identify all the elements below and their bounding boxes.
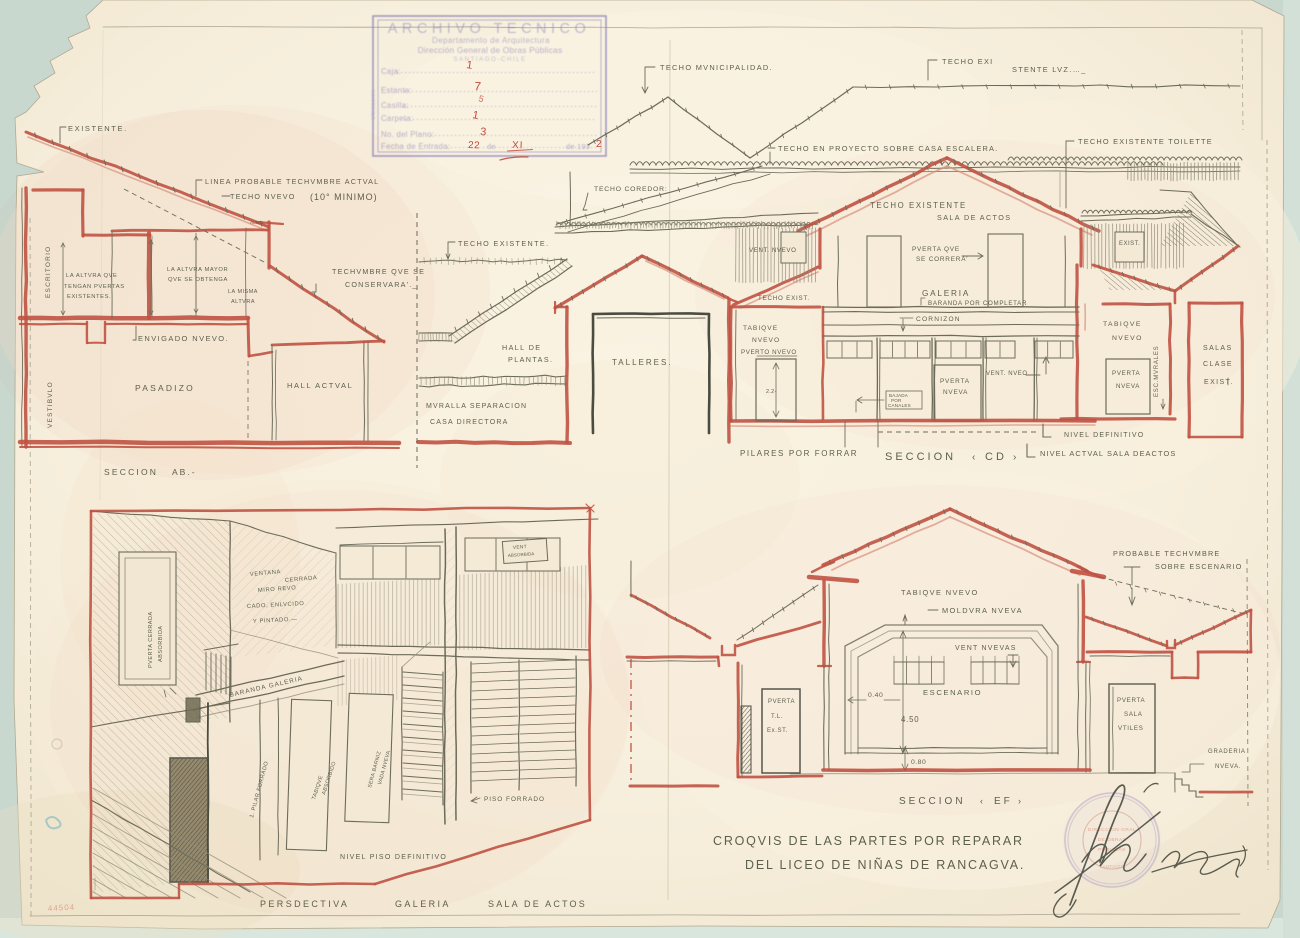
svg-text:SALA DE ACTOS: SALA DE ACTOS <box>488 899 587 909</box>
svg-text:NVEVO: NVEVO <box>1112 335 1143 342</box>
svg-text:BARANDA POR COMPLETAR: BARANDA POR COMPLETAR <box>928 300 1027 307</box>
svg-text:QVE SE OBTENGA: QVE SE OBTENGA <box>168 277 228 283</box>
svg-text:VENT: VENT <box>513 544 527 551</box>
svg-text:TECHO EN PROYECTO SOBRE CA: TECHO EN PROYECTO SOBRE CASA ESCALERA. <box>778 144 998 153</box>
svg-text:SALA: SALA <box>1124 711 1143 718</box>
svg-text:TECHO EXISTENTE.: TECHO EXISTENTE. <box>458 239 550 248</box>
svg-text:SOBRE ESCENARIO: SOBRE ESCENARIO <box>1155 562 1243 571</box>
svg-text:Fecha de Entrada:: Fecha de Entrada: <box>381 142 450 151</box>
svg-text:4.50: 4.50 <box>901 715 919 724</box>
svg-text:PVERTA QVE: PVERTA QVE <box>912 246 960 253</box>
svg-text:ESC.MVRALES: ESC.MVRALES <box>1154 346 1160 397</box>
svg-text:‹: ‹ <box>972 452 976 463</box>
svg-text:CANALES: CANALES <box>888 403 911 408</box>
svg-text:LA MISMA: LA MISMA <box>228 289 258 295</box>
svg-text:PVERTA: PVERTA <box>940 378 970 385</box>
svg-text:Departamento de Arquitectura: Departamento de Arquitectura <box>432 36 550 45</box>
svg-text:NIVEL ACTVAL SALA DEACTOS: NIVEL ACTVAL SALA DEACTOS <box>1040 449 1176 458</box>
svg-text:Caja:: Caja: <box>381 67 401 76</box>
svg-text:ABSORBIDA: ABSORBIDA <box>158 625 164 662</box>
svg-text:PERSDECTIVA: PERSDECTIVA <box>260 899 349 909</box>
svg-text:TABIQVE NVEVO: TABIQVE NVEVO <box>901 588 979 597</box>
svg-text:0.40: 0.40 <box>868 692 883 699</box>
svg-text:2.2-: 2.2- <box>766 389 777 395</box>
svg-text:Dirección General de Obras Púb: Dirección General de Obras Públicas <box>418 45 563 55</box>
svg-text:TECHO EXI: TECHO EXI <box>942 57 994 66</box>
svg-text:TECHO COREDOR:: TECHO COREDOR: <box>594 186 668 193</box>
svg-text:LA ALTVRA MAYOR: LA ALTVRA MAYOR <box>167 267 228 273</box>
svg-text:HALL DE: HALL DE <box>502 343 542 352</box>
svg-text:Casilla:: Casilla: <box>381 101 409 110</box>
svg-text:ALBO: ALBO <box>250 220 263 225</box>
svg-text:CASA DIRECTORA: CASA DIRECTORA <box>430 419 509 426</box>
svg-text:ESCENARIO: ESCENARIO <box>923 688 982 697</box>
svg-text:ENVIGADO NVEVO.: ENVIGADO NVEVO. <box>138 334 229 343</box>
svg-text:TECHO EXISTENTE: TECHO EXISTENTE <box>870 201 967 210</box>
svg-text:VESTIBVLO: VESTIBVLO <box>47 381 54 428</box>
svg-text:2: 2 <box>596 139 602 150</box>
svg-text:Ubicación: Ubicación <box>371 89 377 120</box>
svg-text:CD: CD <box>985 451 1007 463</box>
svg-text:ALTVRA: ALTVRA <box>231 299 255 305</box>
svg-text:NVEVA: NVEVA <box>943 389 968 396</box>
svg-text:HALL ACTVAL: HALL ACTVAL <box>287 381 353 390</box>
svg-text:CROQVIS DE LAS PARTES P: CROQVIS DE LAS PARTES POR REPARAR <box>713 834 1024 848</box>
svg-text:PVERTA CERRADA: PVERTA CERRADA <box>148 611 154 668</box>
svg-text:3: 3 <box>480 126 487 138</box>
svg-text:de: de <box>487 142 496 151</box>
svg-text:TECHO EXIST.: TECHO EXIST. <box>758 295 810 302</box>
svg-text:VENT. NVEVO: VENT. NVEVO <box>749 247 797 254</box>
svg-text:TECHO EXISTENTE TOILETTE: TECHO EXISTENTE TOILETTE <box>1078 137 1213 146</box>
svg-text:AB.-: AB.- <box>172 467 197 477</box>
svg-text:MVRALLA SEPARACION: MVRALLA SEPARACION <box>426 403 527 410</box>
svg-text:T.L.: T.L. <box>771 714 783 720</box>
svg-text:0.80: 0.80 <box>911 759 926 766</box>
svg-text:ESCRITORIO: ESCRITORIO <box>45 246 52 298</box>
svg-text:EXISTENTE.: EXISTENTE. <box>68 124 128 133</box>
svg-text:SALAS: SALAS <box>1203 345 1233 352</box>
svg-text:GALERIA: GALERIA <box>922 289 970 298</box>
svg-text:GALERIA: GALERIA <box>395 899 451 909</box>
svg-text:PISO FORRADO: PISO FORRADO <box>484 796 545 803</box>
svg-text:SALA DE ACTOS: SALA DE ACTOS <box>937 213 1011 222</box>
svg-text:GRADERIA: GRADERIA <box>1208 749 1246 755</box>
svg-text:PVERTA: PVERTA <box>1117 697 1146 704</box>
svg-text:PLANTAS.: PLANTAS. <box>508 355 553 364</box>
svg-text:de 193: de 193 <box>566 142 590 151</box>
svg-text:ARCHIVO TECNICO: ARCHIVO TECNICO <box>388 21 591 37</box>
svg-text:PILARES POR FORRAR: PILARES POR FORRAR <box>740 449 858 458</box>
svg-text:No. del Plano:: No. del Plano: <box>381 130 434 139</box>
svg-text:Carpeta:: Carpeta: <box>381 114 413 123</box>
svg-text:PVERTO NVEVO: PVERTO NVEVO <box>741 349 797 356</box>
svg-text:NIVEL DEFINITIVO: NIVEL DEFINITIVO <box>1064 432 1144 439</box>
svg-text:›: › <box>1013 452 1017 463</box>
svg-text:STENTE LVZ.…_: STENTE LVZ.…_ <box>1012 65 1087 74</box>
svg-text:PROBABLE TECHVMBRE: PROBABLE TECHVMBRE <box>1113 549 1220 558</box>
svg-text:DEL LICEO DE NIÑAS DE: DEL LICEO DE NIÑAS DE RANCAGVA. <box>745 858 1025 872</box>
svg-text:TECHO MVNICIPALIDAD.: TECHO MVNICIPALIDAD. <box>660 63 773 72</box>
svg-text:CORNIZON: CORNIZON <box>916 316 961 323</box>
svg-text:SANTIAGO: SANTIAGO <box>1100 864 1125 869</box>
svg-text:LINEA PROBABLE TECHVMBRE A: LINEA PROBABLE TECHVMBRE ACTVAL <box>205 177 379 186</box>
svg-text:NVEVA: NVEVA <box>1116 383 1140 390</box>
svg-text:LA ALTVRA QVE: LA ALTVRA QVE <box>66 273 118 279</box>
svg-text:VENT. NVEO: VENT. NVEO <box>986 371 1028 377</box>
svg-text:TALLERES.: TALLERES. <box>612 358 673 367</box>
svg-text:PVERTA: PVERTA <box>768 699 795 705</box>
svg-text:EXISTENTES.: EXISTENTES. <box>67 294 111 300</box>
svg-text:44504: 44504 <box>48 903 76 913</box>
svg-text:VTILES: VTILES <box>1118 725 1144 732</box>
svg-text:DIRECCION GRAL: DIRECCION GRAL <box>1088 827 1136 833</box>
svg-text:(10° MINIMO): (10° MINIMO) <box>310 192 378 202</box>
svg-text:TECHVMBRE QVE SE: TECHVMBRE QVE SE <box>332 267 425 276</box>
svg-text:CONSERVARA'._: CONSERVARA'._ <box>345 280 418 289</box>
svg-text:SANTIAGO-CHILE: SANTIAGO-CHILE <box>453 56 526 63</box>
svg-text:Ex.ST.: Ex.ST. <box>767 728 788 734</box>
svg-text:Estante:: Estante: <box>381 86 412 95</box>
svg-text:SE CORRERA': SE CORRERA' <box>916 256 968 263</box>
svg-text:EF: EF <box>994 796 1013 807</box>
svg-text:NVEVO: NVEVO <box>752 337 780 344</box>
svg-text:VENT NVEVAS: VENT NVEVAS <box>955 645 1017 652</box>
svg-text:›: › <box>1018 796 1022 806</box>
svg-text:22: 22 <box>468 140 481 151</box>
svg-text:SECCION: SECCION <box>104 467 158 477</box>
svg-text:PASADIZO: PASADIZO <box>135 383 195 393</box>
svg-text:CLASE: CLASE <box>1203 361 1233 368</box>
svg-text:NVEVA.: NVEVA. <box>1215 764 1241 770</box>
svg-text:EXIST.: EXIST. <box>1119 241 1140 247</box>
svg-text:SECCION: SECCION <box>899 796 966 807</box>
svg-text:EXIST.: EXIST. <box>1204 379 1234 386</box>
svg-text:TABIQVE: TABIQVE <box>743 325 778 332</box>
svg-text:‹: ‹ <box>980 796 984 806</box>
svg-text:SECCION: SECCION <box>885 451 956 463</box>
svg-text:TECHO NVEVO: TECHO NVEVO <box>230 192 296 201</box>
svg-text:PVERTA: PVERTA <box>1112 370 1141 377</box>
svg-text:TABIQVE: TABIQVE <box>1103 321 1142 328</box>
svg-text:TENGAN PVERTAS: TENGAN PVERTAS <box>64 284 125 290</box>
svg-text:NIVEL PISO DEFINITIVO: NIVEL PISO DEFINITIVO <box>340 854 447 861</box>
svg-text:MOLDVRA NVEVA: MOLDVRA NVEVA <box>942 606 1023 615</box>
